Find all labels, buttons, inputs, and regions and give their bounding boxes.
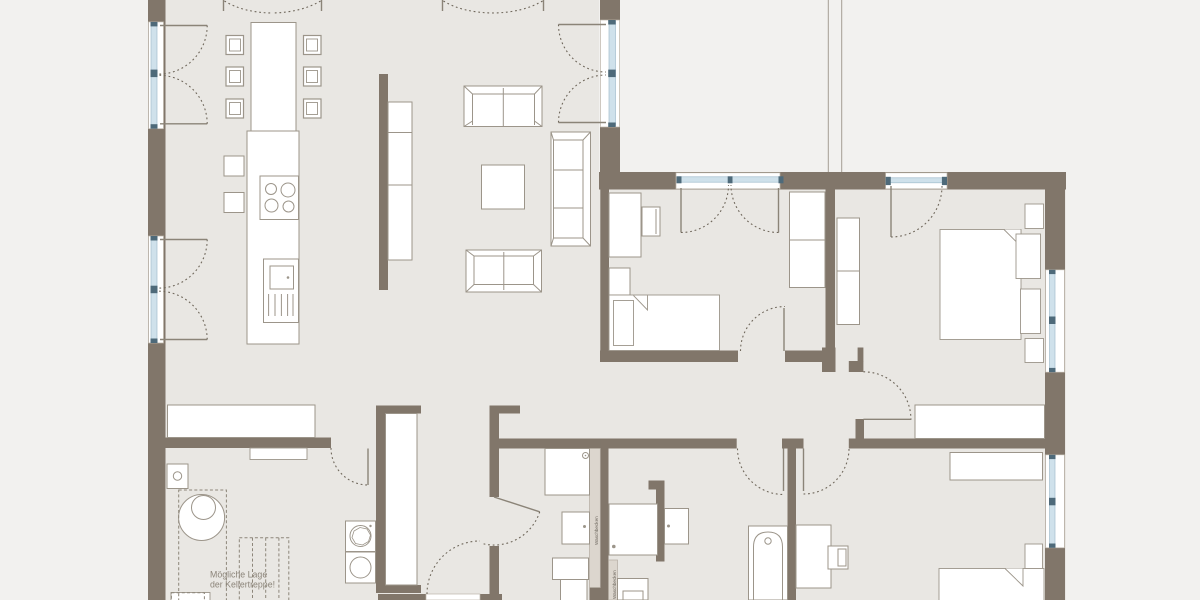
svg-text:Waschbecken: Waschbecken xyxy=(612,570,617,599)
svg-text:der Kellertreppe!: der Kellertreppe! xyxy=(210,580,275,590)
svg-text:Waschbecken: Waschbecken xyxy=(594,516,599,545)
svg-text:Mögliche Lage: Mögliche Lage xyxy=(210,570,267,580)
